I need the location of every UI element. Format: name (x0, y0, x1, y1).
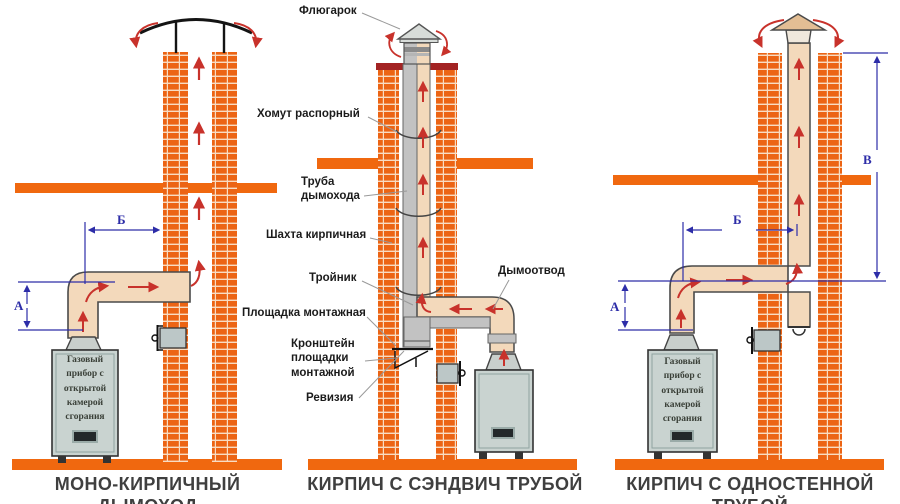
caption-left: МОНО-КИРПИЧНЫЙ ДЫМОХОД (5, 474, 290, 504)
brick-column (758, 292, 782, 460)
appliance-label-left: Газовый прибор с открытой камерой сгоран… (52, 353, 118, 424)
condensate-drain (793, 329, 805, 335)
callout-flyugarok: Флюгарок (299, 4, 357, 18)
callout-dymootvod: Дымоотвод (498, 264, 565, 278)
gas-appliance (475, 354, 533, 459)
caption-middle: КИРПИЧ С СЭНДВИЧ ТРУБОЙ (300, 474, 590, 496)
appliance-label-right: Газовый прибор с открытой камерой сгоран… (648, 355, 717, 426)
flyugarok-cap (398, 24, 440, 39)
dim-label-b-left: Б (117, 213, 126, 226)
floor-slab (308, 459, 577, 470)
callout-troynik: Тройник (309, 271, 356, 285)
caption-right: КИРПИЧ С ОДНОСТЕННОЙ ТРУБОЙ (600, 474, 900, 504)
dim-label-a-left: А (14, 299, 23, 312)
cap-collar (786, 30, 811, 43)
diagram-canvas (0, 0, 900, 504)
vent-collar (66, 337, 101, 350)
pipe-cap (772, 14, 825, 30)
revision-stub (404, 317, 430, 347)
burner-window (492, 428, 514, 438)
cleanout-door (152, 325, 186, 351)
dim-label-v-right: В (863, 153, 872, 166)
dim-label-b-right: Б (733, 213, 742, 226)
callout-kronshteyn: Кронштейн площадки монтажной (291, 337, 355, 380)
floor-slab (12, 459, 282, 470)
brick-column (436, 70, 457, 300)
brick-column (378, 70, 399, 460)
ceiling-slab (455, 158, 533, 169)
brick-column (163, 52, 188, 462)
ceiling-slab (15, 183, 277, 193)
burner-window (73, 431, 97, 442)
cleanout-door (437, 361, 465, 386)
brick-column (818, 53, 842, 460)
vent-collar (664, 335, 699, 350)
floor-slab (615, 459, 884, 470)
chimney-schemes-diagram: Флюгарок Хомут распорный Труба дымохода … (0, 0, 900, 504)
callout-shakhta: Шахта кирпичная (266, 228, 366, 242)
ceiling-slab (842, 175, 871, 185)
chimney-top-arc (136, 20, 257, 54)
callout-truba: Труба дымохода (301, 175, 360, 204)
brick-column (758, 53, 782, 265)
burner-window (671, 431, 693, 441)
brick-column (436, 328, 457, 460)
callout-ploshchadka: Площадка монтажная (242, 306, 366, 320)
callout-khomut: Хомут распорный (257, 107, 360, 121)
cleanout-door (747, 327, 780, 354)
ceiling-slab (317, 158, 378, 169)
ceiling-slab (613, 175, 758, 185)
callout-reviziya: Ревизия (306, 391, 353, 405)
dim-label-a-right: А (610, 300, 619, 313)
pipe-joint (488, 334, 516, 343)
brick-column (212, 52, 237, 462)
